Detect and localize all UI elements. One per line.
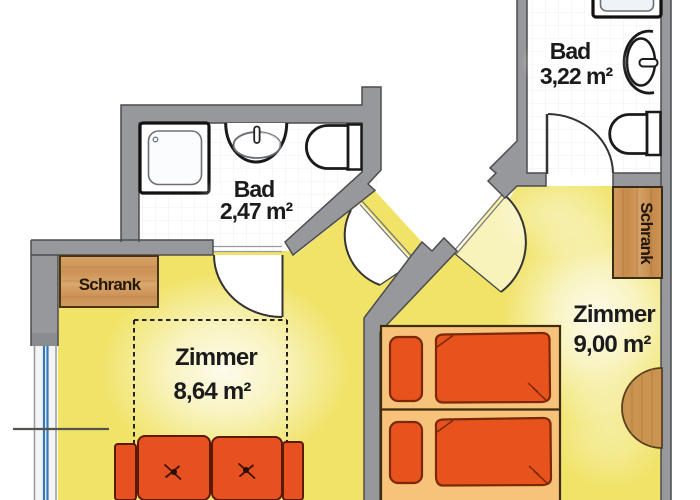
svg-text:Zimmer: Zimmer [175,344,257,371]
svg-text:Bad: Bad [550,38,590,64]
svg-text:8,64 m²: 8,64 m² [173,378,251,405]
svg-text:Schrank: Schrank [79,275,142,294]
svg-text:3,22 m²: 3,22 m² [540,63,614,89]
svg-text:Zimmer: Zimmer [573,301,655,328]
svg-text:9,00 m²: 9,00 m² [573,331,651,358]
svg-text:2,47 m²: 2,47 m² [220,198,294,224]
svg-text:Schrank: Schrank [637,202,656,265]
